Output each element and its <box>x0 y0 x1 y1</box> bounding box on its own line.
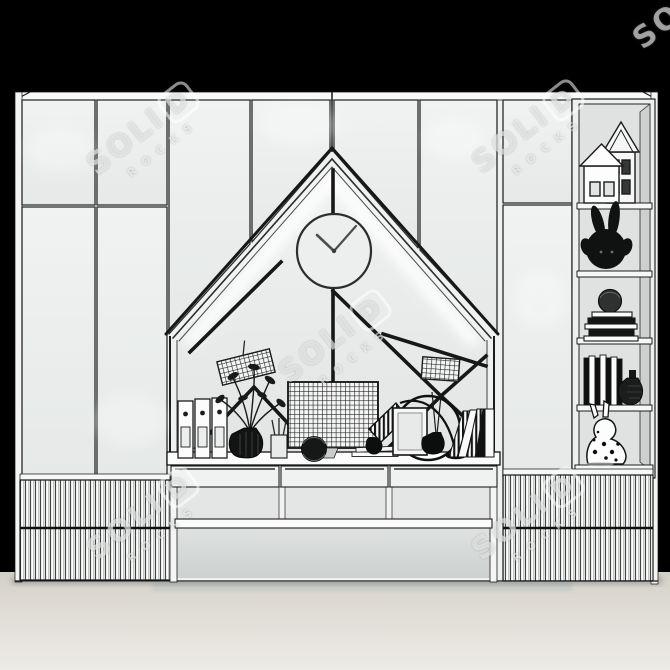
door <box>503 100 572 203</box>
pegboard-right <box>421 357 459 382</box>
render-canvas: SOLID ROCKS SOLID ROCKS SOLID ROCKS SOLI… <box>0 0 670 670</box>
door <box>503 205 572 478</box>
door <box>22 207 95 478</box>
ring-binders <box>178 398 227 458</box>
door <box>97 100 167 205</box>
column-inner-wall <box>640 104 650 470</box>
mesh-sphere-basket <box>302 437 327 462</box>
desk-leg-right <box>490 487 497 582</box>
desk-mid-shelf <box>175 519 492 528</box>
cubby-divider <box>279 487 285 521</box>
clock-center <box>332 249 336 253</box>
top-edge <box>15 92 658 100</box>
desk <box>167 452 500 582</box>
shelf <box>577 271 652 277</box>
left-drawer-stack <box>20 480 170 580</box>
furniture-render <box>0 0 670 670</box>
wall-clock <box>297 214 371 288</box>
photo-frame <box>393 408 427 455</box>
cubby-divider <box>386 487 392 521</box>
desk-leg-left <box>170 487 177 582</box>
shelf <box>577 405 652 411</box>
